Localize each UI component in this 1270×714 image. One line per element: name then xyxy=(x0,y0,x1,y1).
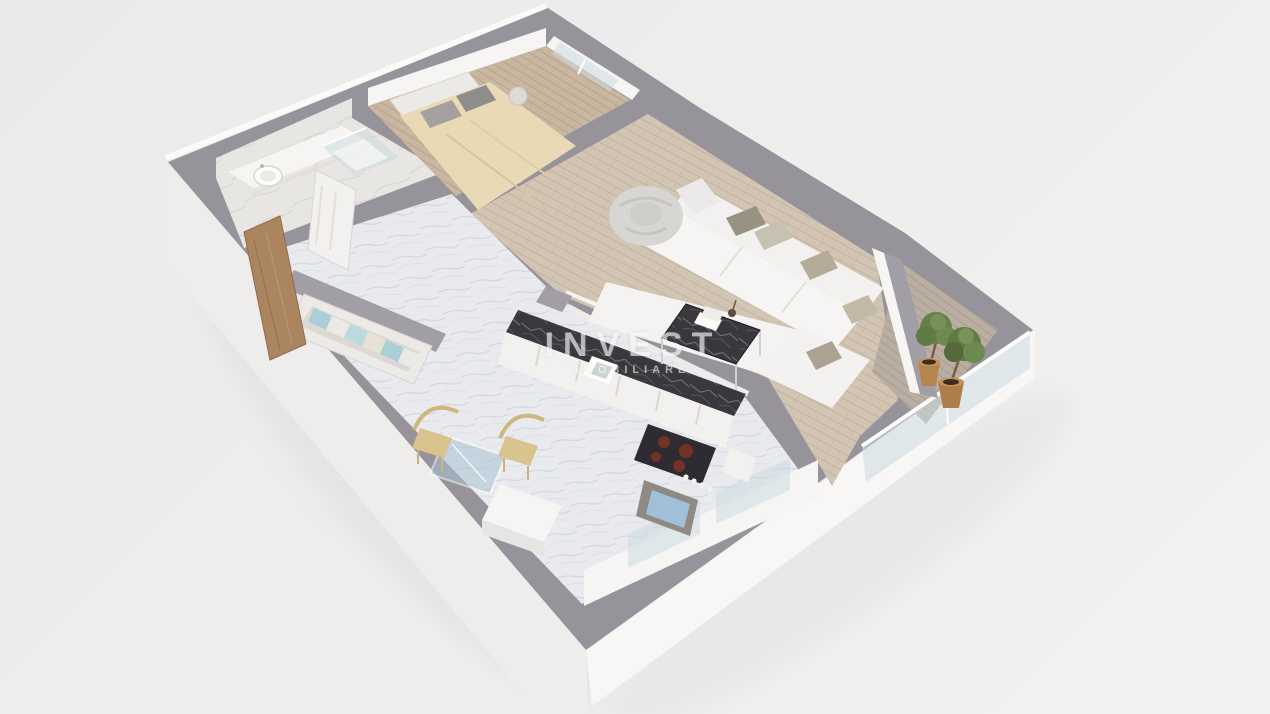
apartment-3d-scene xyxy=(0,0,1270,714)
faucet xyxy=(260,164,264,168)
bedside-table xyxy=(509,87,527,105)
floorplan-render: INVEST IMOBILIARE xyxy=(0,0,1270,714)
pouf-armchair xyxy=(609,186,683,246)
basin-bowl xyxy=(260,171,276,182)
